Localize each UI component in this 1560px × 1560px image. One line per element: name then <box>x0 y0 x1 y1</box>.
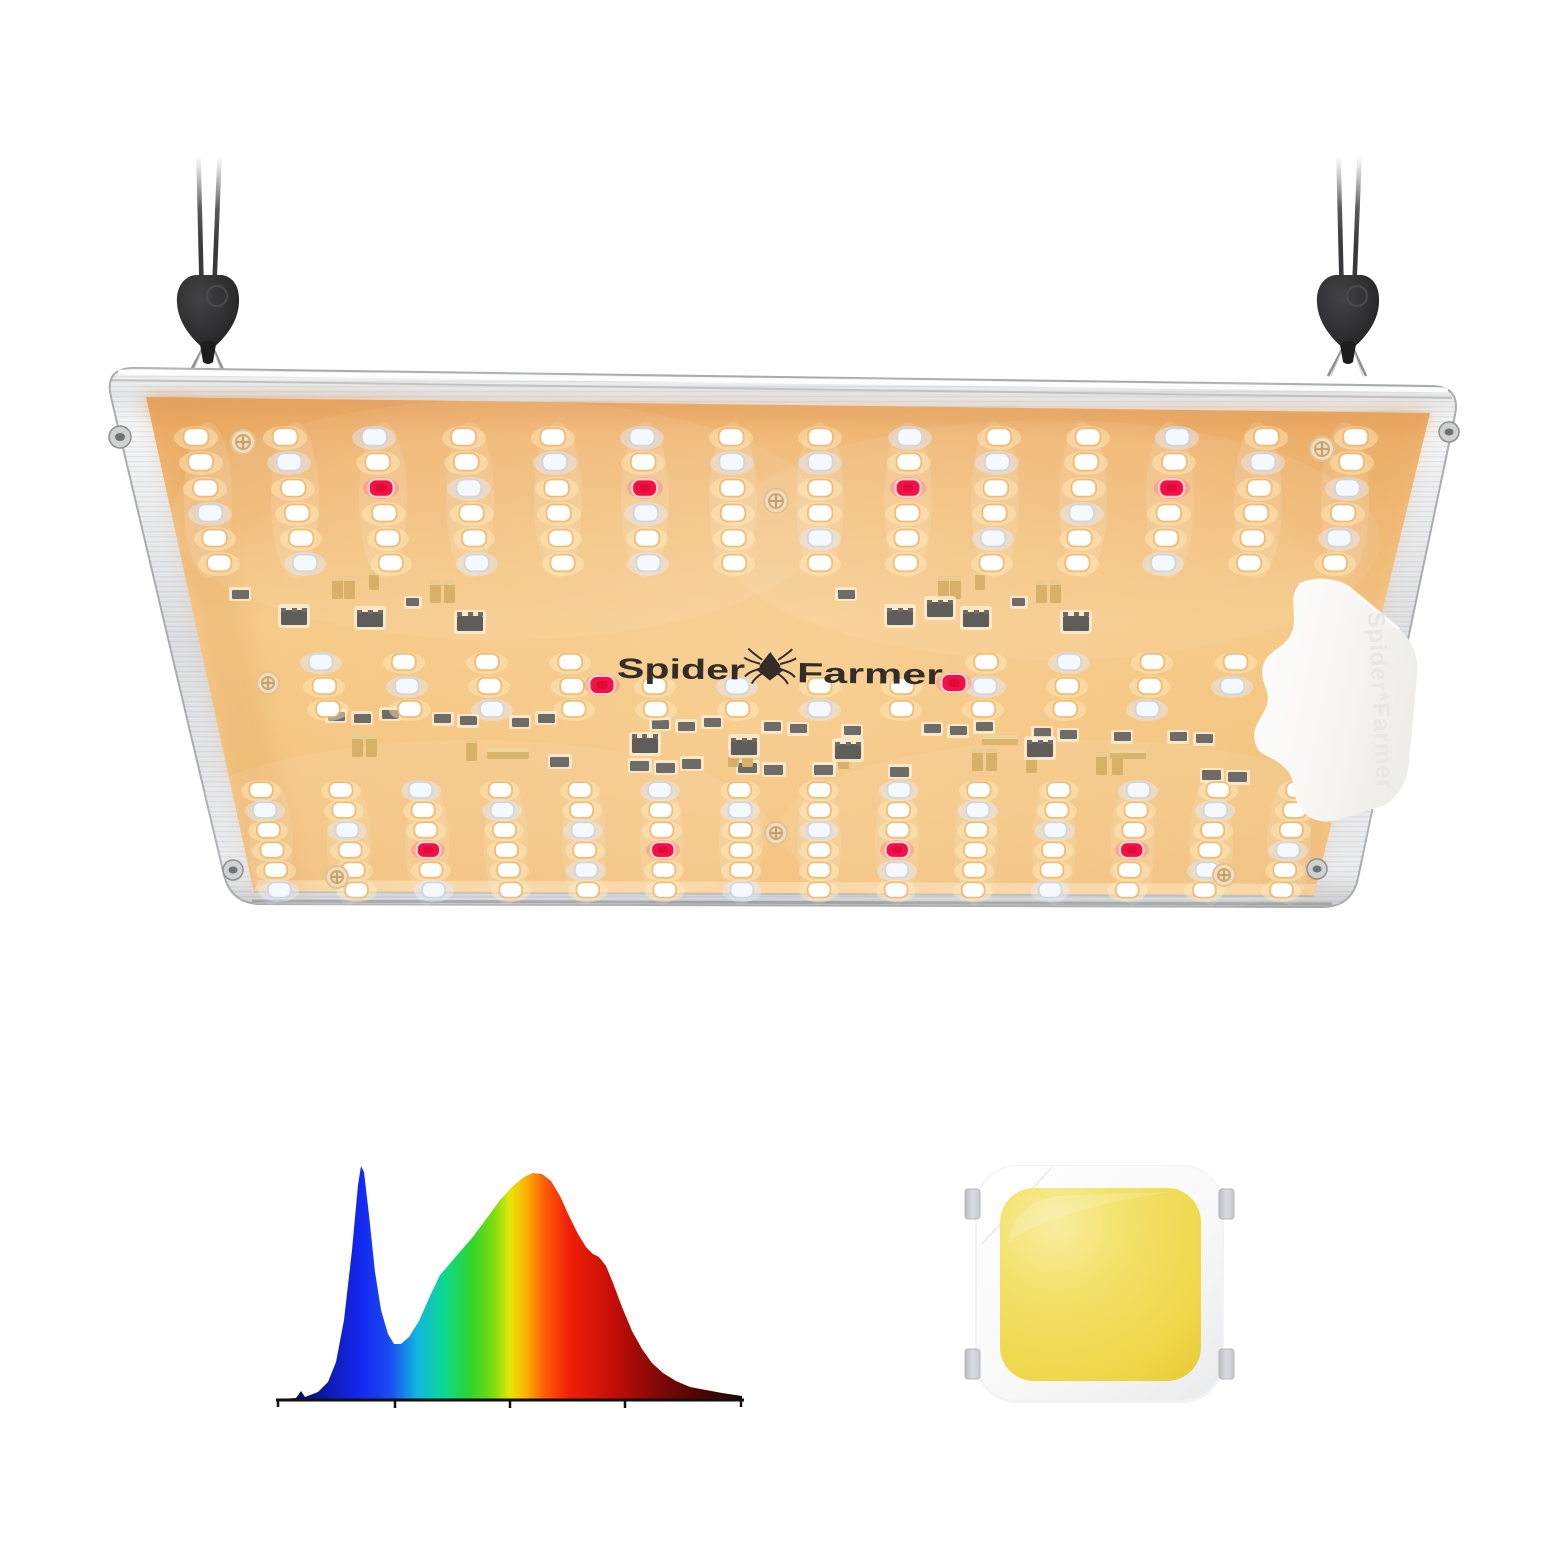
svg-text:Farmer: Farmer <box>797 657 944 690</box>
svg-text:Spider: Spider <box>617 653 746 686</box>
